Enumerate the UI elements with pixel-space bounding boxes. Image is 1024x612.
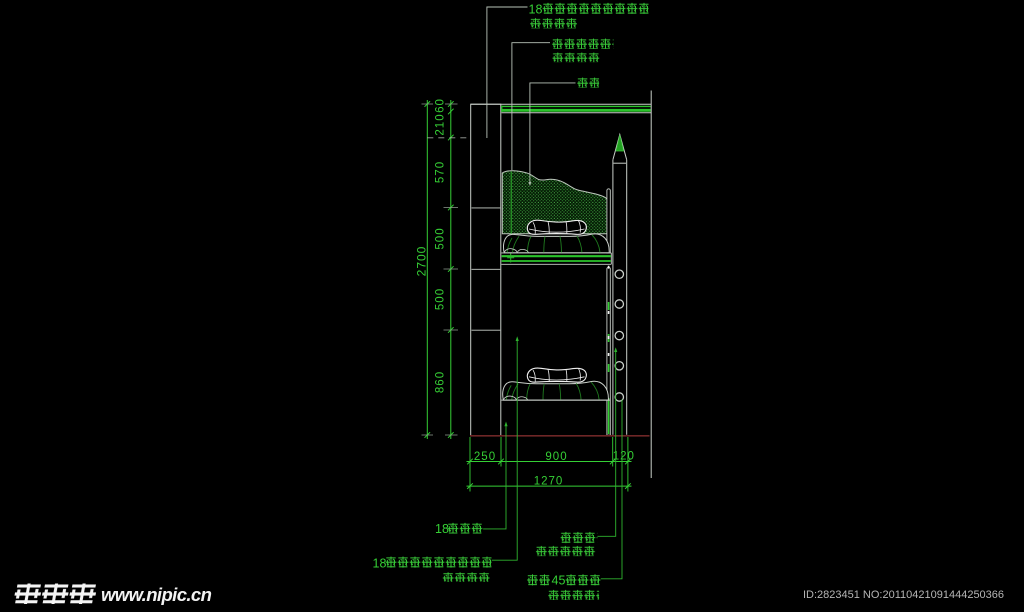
- svg-text:www.nipic.cn: www.nipic.cn: [101, 584, 212, 605]
- svg-text:1270: 1270: [534, 475, 564, 487]
- svg-text:210: 210: [435, 113, 447, 135]
- svg-text:900: 900: [545, 451, 567, 463]
- svg-text:860: 860: [435, 371, 447, 393]
- svg-text:18: 18: [529, 3, 543, 17]
- svg-text:ID:2823451 NO:2011042109144425: ID:2823451 NO:20110421091444250366: [803, 589, 1004, 601]
- svg-text:45: 45: [552, 574, 566, 588]
- svg-text:500: 500: [435, 288, 447, 310]
- svg-text:18: 18: [373, 557, 387, 571]
- svg-text:60: 60: [435, 98, 447, 113]
- svg-text:500: 500: [435, 227, 447, 249]
- svg-text:2700: 2700: [415, 246, 429, 277]
- svg-text:18: 18: [435, 522, 449, 536]
- svg-text:250: 250: [474, 451, 496, 463]
- svg-text:570: 570: [435, 161, 447, 183]
